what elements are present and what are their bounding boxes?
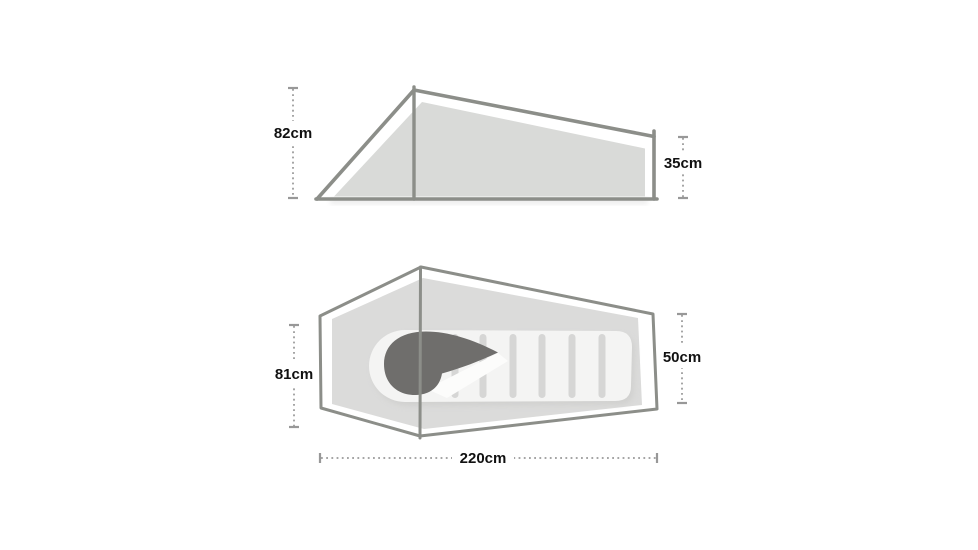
floor-plan-view: 81cm 50cm 220cm [269, 267, 707, 469]
tent-dimensions-diagram: 82cm 35cm [0, 0, 978, 550]
floor-plan-center-pole [420, 267, 421, 438]
foot-height-label: 35cm [664, 155, 702, 172]
dimension-foot-height: 35cm [658, 137, 708, 198]
side-elevation-view: 82cm 35cm [268, 87, 708, 204]
length-label: 220cm [460, 450, 507, 467]
side-view-canvas-fill [334, 102, 645, 197]
baffle-bar [510, 334, 517, 398]
dimension-head-width: 81cm [269, 325, 319, 427]
head-width-label: 81cm [275, 366, 313, 383]
dimension-peak-height: 82cm [268, 88, 318, 198]
peak-height-label: 82cm [274, 125, 312, 142]
baffle-bar [539, 334, 546, 398]
diagram-page: 82cm 35cm [0, 0, 978, 550]
baffle-bar [569, 334, 576, 398]
dimension-foot-width: 50cm [657, 314, 707, 403]
dimension-length: 220cm [320, 446, 657, 469]
foot-width-label: 50cm [663, 349, 701, 366]
baffle-bar [599, 334, 606, 398]
